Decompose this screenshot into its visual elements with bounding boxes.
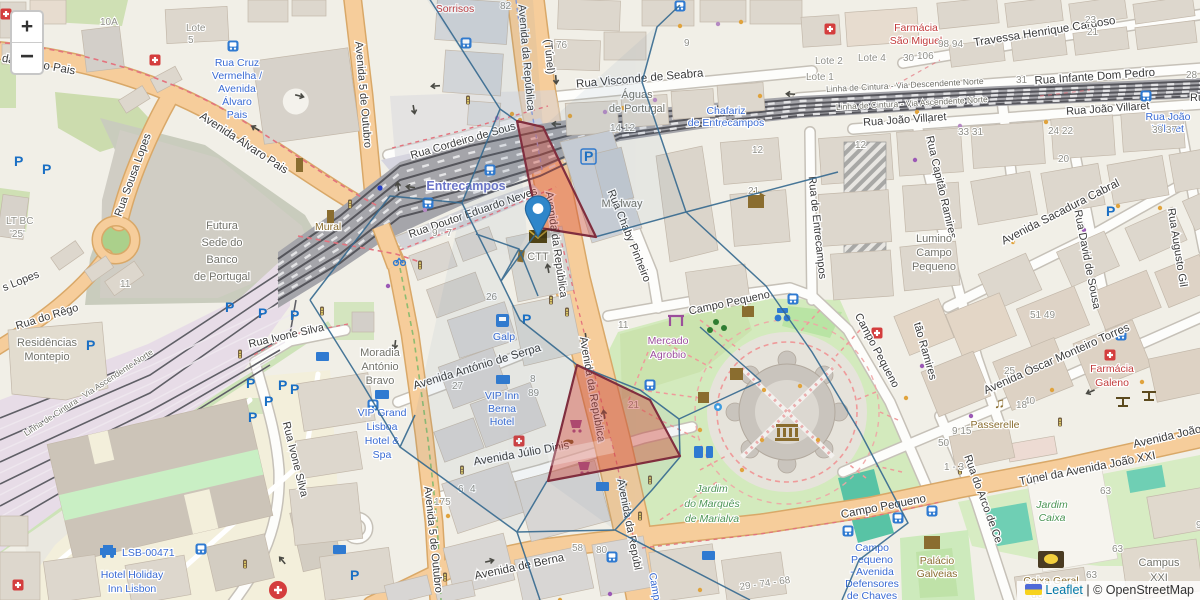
svg-text:21: 21: [1087, 27, 1099, 38]
svg-text:Campo: Campo: [916, 247, 951, 259]
svg-text:51 49: 51 49: [1030, 310, 1055, 321]
svg-text:P: P: [246, 375, 255, 391]
svg-text:'25': '25': [10, 229, 25, 240]
svg-text:de Marialva: de Marialva: [685, 513, 739, 525]
svg-text:Mural: Mural: [315, 221, 341, 233]
svg-text:98 94: 98 94: [938, 39, 963, 50]
svg-text:106: 106: [917, 51, 934, 62]
svg-text:Hotel Holiday: Hotel Holiday: [101, 569, 164, 581]
svg-text:P: P: [350, 567, 359, 583]
svg-text:♫: ♫: [994, 395, 1005, 412]
svg-text:Lote 1: Lote 1: [806, 72, 834, 83]
svg-text:28: 28: [1186, 70, 1198, 81]
svg-text:Álvaro: Álvaro: [222, 95, 252, 108]
svg-text:- Avenida: - Avenida: [850, 566, 894, 578]
svg-text:63: 63: [1112, 544, 1124, 555]
svg-text:Campus: Campus: [1139, 557, 1180, 569]
svg-text:São Miguel: São Miguel: [890, 35, 943, 47]
svg-text:LT BC: LT BC: [6, 216, 33, 227]
svg-text:50: 50: [938, 438, 950, 449]
svg-text:Pais: Pais: [227, 109, 247, 121]
svg-text:9 15: 9 15: [952, 426, 972, 437]
svg-text:António: António: [361, 361, 398, 373]
svg-text:9 - 7: 9 - 7: [432, 228, 452, 239]
svg-text:P: P: [42, 161, 51, 177]
svg-text:P: P: [290, 307, 299, 323]
svg-text:80: 80: [596, 545, 608, 556]
svg-text:Lote 4: Lote 4: [858, 53, 886, 64]
svg-text:Campo: Campo: [855, 542, 889, 554]
svg-text:Farmácia: Farmácia: [1090, 363, 1134, 375]
svg-text:Residências: Residências: [17, 337, 77, 349]
svg-text:12: 12: [752, 145, 764, 156]
svg-text:de Chaves: de Chaves: [847, 590, 897, 600]
svg-text:Jardim: Jardim: [1035, 499, 1068, 511]
svg-text:de Portugal: de Portugal: [194, 271, 250, 283]
svg-text:CTT: CTT: [527, 251, 549, 263]
svg-text:58: 58: [572, 543, 584, 554]
svg-text:Vermelha /: Vermelha /: [212, 70, 262, 82]
svg-text:11: 11: [120, 279, 131, 290]
svg-text:Avenida: Avenida: [218, 83, 256, 95]
svg-text:Moradia: Moradia: [360, 347, 401, 359]
svg-text:11: 11: [618, 320, 629, 331]
svg-text:Sede do: Sede do: [202, 237, 243, 249]
svg-text:Agrobio: Agrobio: [650, 349, 686, 361]
svg-text:P: P: [290, 381, 299, 397]
svg-text:Futura: Futura: [206, 220, 239, 232]
svg-text:Lumino: Lumino: [916, 233, 952, 245]
svg-text:P: P: [258, 305, 267, 321]
svg-text:P: P: [264, 393, 273, 409]
svg-text:5: 5: [188, 35, 194, 46]
svg-text:33 31: 33 31: [958, 127, 983, 138]
svg-text:31: 31: [1016, 75, 1028, 86]
svg-text:P: P: [225, 299, 234, 315]
svg-text:39 37: 39 37: [1152, 125, 1177, 136]
svg-text:Mercado: Mercado: [648, 335, 689, 347]
svg-text:Passerelle: Passerelle: [970, 419, 1019, 431]
svg-text:LSB-00471: LSB-00471: [122, 547, 175, 559]
svg-text:de Entrecampos: de Entrecampos: [688, 117, 764, 129]
svg-text:175: 175: [434, 497, 451, 508]
svg-text:24 22: 24 22: [1048, 126, 1073, 137]
svg-text:Rua J: Rua J: [1190, 92, 1200, 104]
svg-text:Lisboa: Lisboa: [367, 421, 398, 433]
svg-text:23: 23: [1085, 15, 1097, 26]
svg-text:Farmácia: Farmácia: [894, 22, 938, 34]
svg-text:18: 18: [1016, 400, 1028, 411]
svg-text:Caixa: Caixa: [1039, 512, 1066, 524]
svg-text:Rua Cruz: Rua Cruz: [215, 57, 259, 69]
svg-text:Galveias: Galveias: [917, 568, 958, 580]
svg-text:95: 95: [1196, 520, 1200, 531]
svg-text:Chafariz: Chafariz: [706, 105, 745, 117]
svg-text:25: 25: [1004, 366, 1016, 377]
svg-text:Spa: Spa: [373, 449, 392, 461]
svg-text:Galeno: Galeno: [1095, 377, 1129, 389]
svg-text:Rua João: Rua João: [1146, 111, 1191, 123]
svg-text:Palácio: Palácio: [920, 555, 955, 567]
svg-text:P: P: [278, 377, 287, 393]
svg-text:do Marquês: do Marquês: [684, 498, 740, 510]
svg-text:Montepio: Montepio: [24, 351, 69, 363]
svg-text:P: P: [14, 153, 23, 169]
svg-text:Banco: Banco: [206, 254, 237, 266]
svg-text:P: P: [1106, 203, 1115, 219]
svg-text:30: 30: [903, 53, 915, 64]
svg-text:Inn Lisbon: Inn Lisbon: [108, 583, 157, 595]
svg-text:Defensores: Defensores: [845, 578, 899, 590]
svg-text:9: 9: [684, 38, 690, 49]
svg-text:12: 12: [855, 140, 867, 151]
svg-text:63: 63: [1086, 570, 1098, 581]
svg-text:20: 20: [1058, 154, 1070, 165]
svg-text:Bravo: Bravo: [366, 375, 395, 387]
svg-text:1 - 3: 1 - 3: [944, 462, 964, 473]
svg-text:Jardim: Jardim: [695, 483, 728, 495]
svg-text:P: P: [248, 409, 257, 425]
svg-text:P: P: [86, 337, 95, 353]
svg-text:76: 76: [556, 40, 568, 51]
svg-text:63: 63: [1100, 486, 1112, 497]
svg-text:Lote: Lote: [186, 23, 206, 34]
svg-text:10A: 10A: [100, 17, 118, 28]
svg-text:Lote 2: Lote 2: [815, 56, 843, 67]
svg-text:Pequeno: Pequeno: [912, 261, 956, 273]
